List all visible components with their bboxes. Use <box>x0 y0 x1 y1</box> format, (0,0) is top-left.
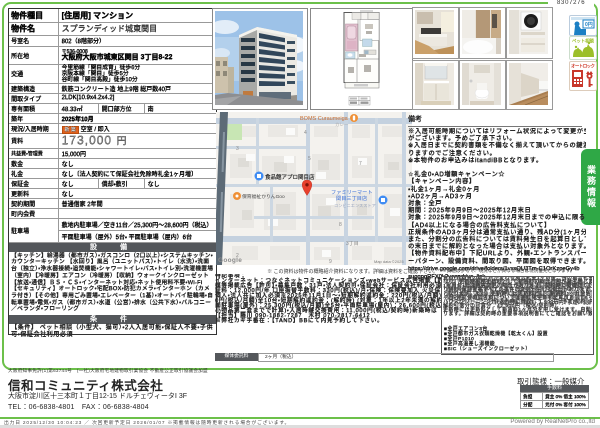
svg-text:コンビニエンスストア: コンビニエンスストア <box>334 202 376 209</box>
svg-text:オートロック: オートロック <box>571 63 596 70</box>
svg-text:食品館アプロ関目店: 食品館アプロ関目店 <box>264 173 315 181</box>
svg-text:Google: Google <box>218 257 242 264</box>
svg-text:ペット相談: ペット相談 <box>572 38 595 45</box>
svg-text:8: 8 <box>339 222 342 228</box>
svg-text:関目三丁目店: 関目三丁目店 <box>336 195 367 202</box>
svg-text:Map data ©2025: Map data ©2025 <box>374 259 404 264</box>
svg-text:5: 5 <box>308 156 311 162</box>
svg-text:ファミリーマート: ファミリーマート <box>331 189 373 196</box>
svg-text:3: 3 <box>236 146 239 152</box>
svg-text:保育福祉かりんGoo: 保育福祉かりんGoo <box>242 193 285 200</box>
svg-text:9: 9 <box>329 259 332 265</box>
svg-text:0円: 0円 <box>585 21 593 28</box>
svg-text:3丁目: 3丁目 <box>346 241 359 247</box>
svg-text:7: 7 <box>359 161 362 167</box>
svg-text:4: 4 <box>304 130 307 136</box>
